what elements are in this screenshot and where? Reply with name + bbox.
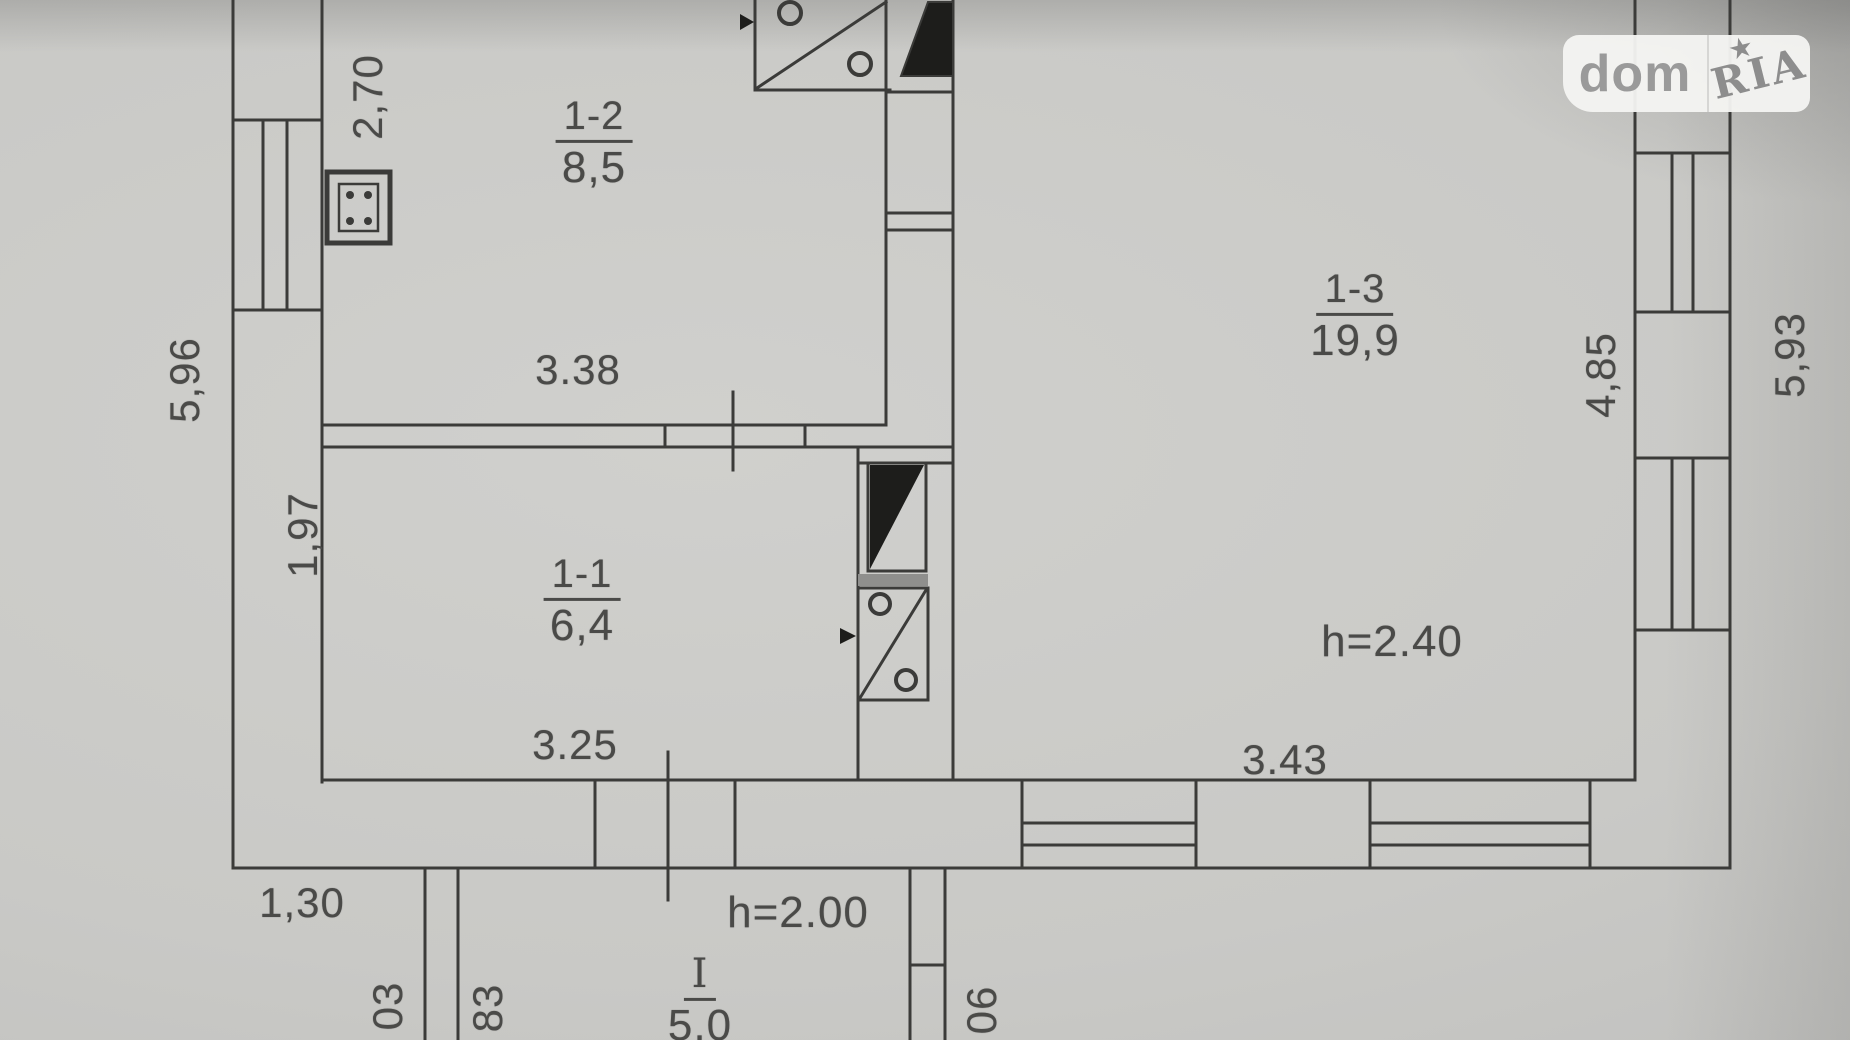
floorplan-photo: 2,70 5,96 3.38 1,97 3.25 1,30 3.43 4,85 … bbox=[0, 0, 1850, 1040]
dim-3-43: 3.43 bbox=[1242, 736, 1328, 784]
dim-2-70: 2,70 bbox=[344, 54, 392, 140]
door-direction-arrow bbox=[740, 14, 754, 30]
room-label-1-2: 1-2 8,5 bbox=[556, 93, 633, 191]
dim-03-cut: 03 bbox=[364, 982, 412, 1031]
right-wall-window-2 bbox=[1635, 458, 1730, 630]
bottom-door-opening bbox=[595, 752, 735, 900]
room-label-porch: I 5,0 bbox=[668, 951, 732, 1040]
domria-logo: dom ★RIA bbox=[1563, 35, 1810, 112]
room-label-1-3: 1-3 19,9 bbox=[1310, 266, 1400, 364]
outer-walls bbox=[233, 0, 1730, 868]
door-threshold bbox=[858, 574, 928, 586]
room-number: 1-2 bbox=[556, 95, 633, 143]
room-number: 1-1 bbox=[544, 553, 621, 601]
bottom-wall-window-1 bbox=[1022, 780, 1196, 868]
height-porch: h=2.00 bbox=[727, 888, 869, 938]
room-number: 1-3 bbox=[1317, 268, 1394, 316]
room-area: 6,4 bbox=[544, 601, 621, 649]
height-room13: h=2.40 bbox=[1321, 617, 1463, 667]
top-door bbox=[740, 0, 890, 90]
bottom-wall-window-2 bbox=[1370, 780, 1590, 868]
dom-logo-box: dom bbox=[1563, 35, 1709, 112]
ria-star-icon: ★ bbox=[1726, 32, 1757, 65]
door-fill-middle bbox=[870, 465, 924, 569]
dom-logo-text: dom bbox=[1579, 48, 1692, 100]
dim-83-cut: 83 bbox=[464, 984, 512, 1033]
ria-logo-text: RIA bbox=[1707, 38, 1812, 109]
room-area: 5,0 bbox=[668, 1001, 732, 1040]
door-hinge-circle bbox=[896, 670, 916, 690]
dim-5-96: 5,96 bbox=[161, 337, 209, 423]
door-hinge-circle bbox=[849, 53, 871, 75]
interior-wall-vertical bbox=[886, 0, 953, 780]
dim-5-93: 5,93 bbox=[1766, 312, 1814, 398]
floorplan-drawing: 2,70 5,96 3.38 1,97 3.25 1,30 3.43 4,85 … bbox=[0, 0, 1850, 1040]
door-hinge-circle bbox=[870, 594, 890, 614]
ria-logo-stamp: ★RIA bbox=[1708, 41, 1811, 105]
right-wall-window-1 bbox=[1635, 153, 1730, 312]
interior-doors bbox=[840, 447, 953, 780]
room-area: 8,5 bbox=[556, 143, 633, 191]
dim-1-97: 1,97 bbox=[279, 492, 327, 578]
room-area: 19,9 bbox=[1310, 316, 1400, 364]
room-label-1-1: 1-1 6,4 bbox=[544, 551, 621, 649]
door-fill-top bbox=[901, 2, 953, 76]
door-direction-arrow bbox=[840, 628, 856, 644]
door-hinge-circle bbox=[779, 2, 801, 24]
dim-4-85: 4,85 bbox=[1577, 332, 1625, 418]
dim-3-25: 3.25 bbox=[532, 721, 618, 769]
dim-3-38: 3.38 bbox=[535, 346, 621, 394]
dim-06-cut: 06 bbox=[958, 986, 1006, 1035]
room-number: I bbox=[684, 953, 717, 1001]
ria-logo-box: ★RIA bbox=[1709, 35, 1810, 112]
stove-symbol bbox=[327, 172, 390, 243]
dim-1-30: 1,30 bbox=[259, 879, 345, 927]
left-wall-window bbox=[233, 120, 322, 310]
